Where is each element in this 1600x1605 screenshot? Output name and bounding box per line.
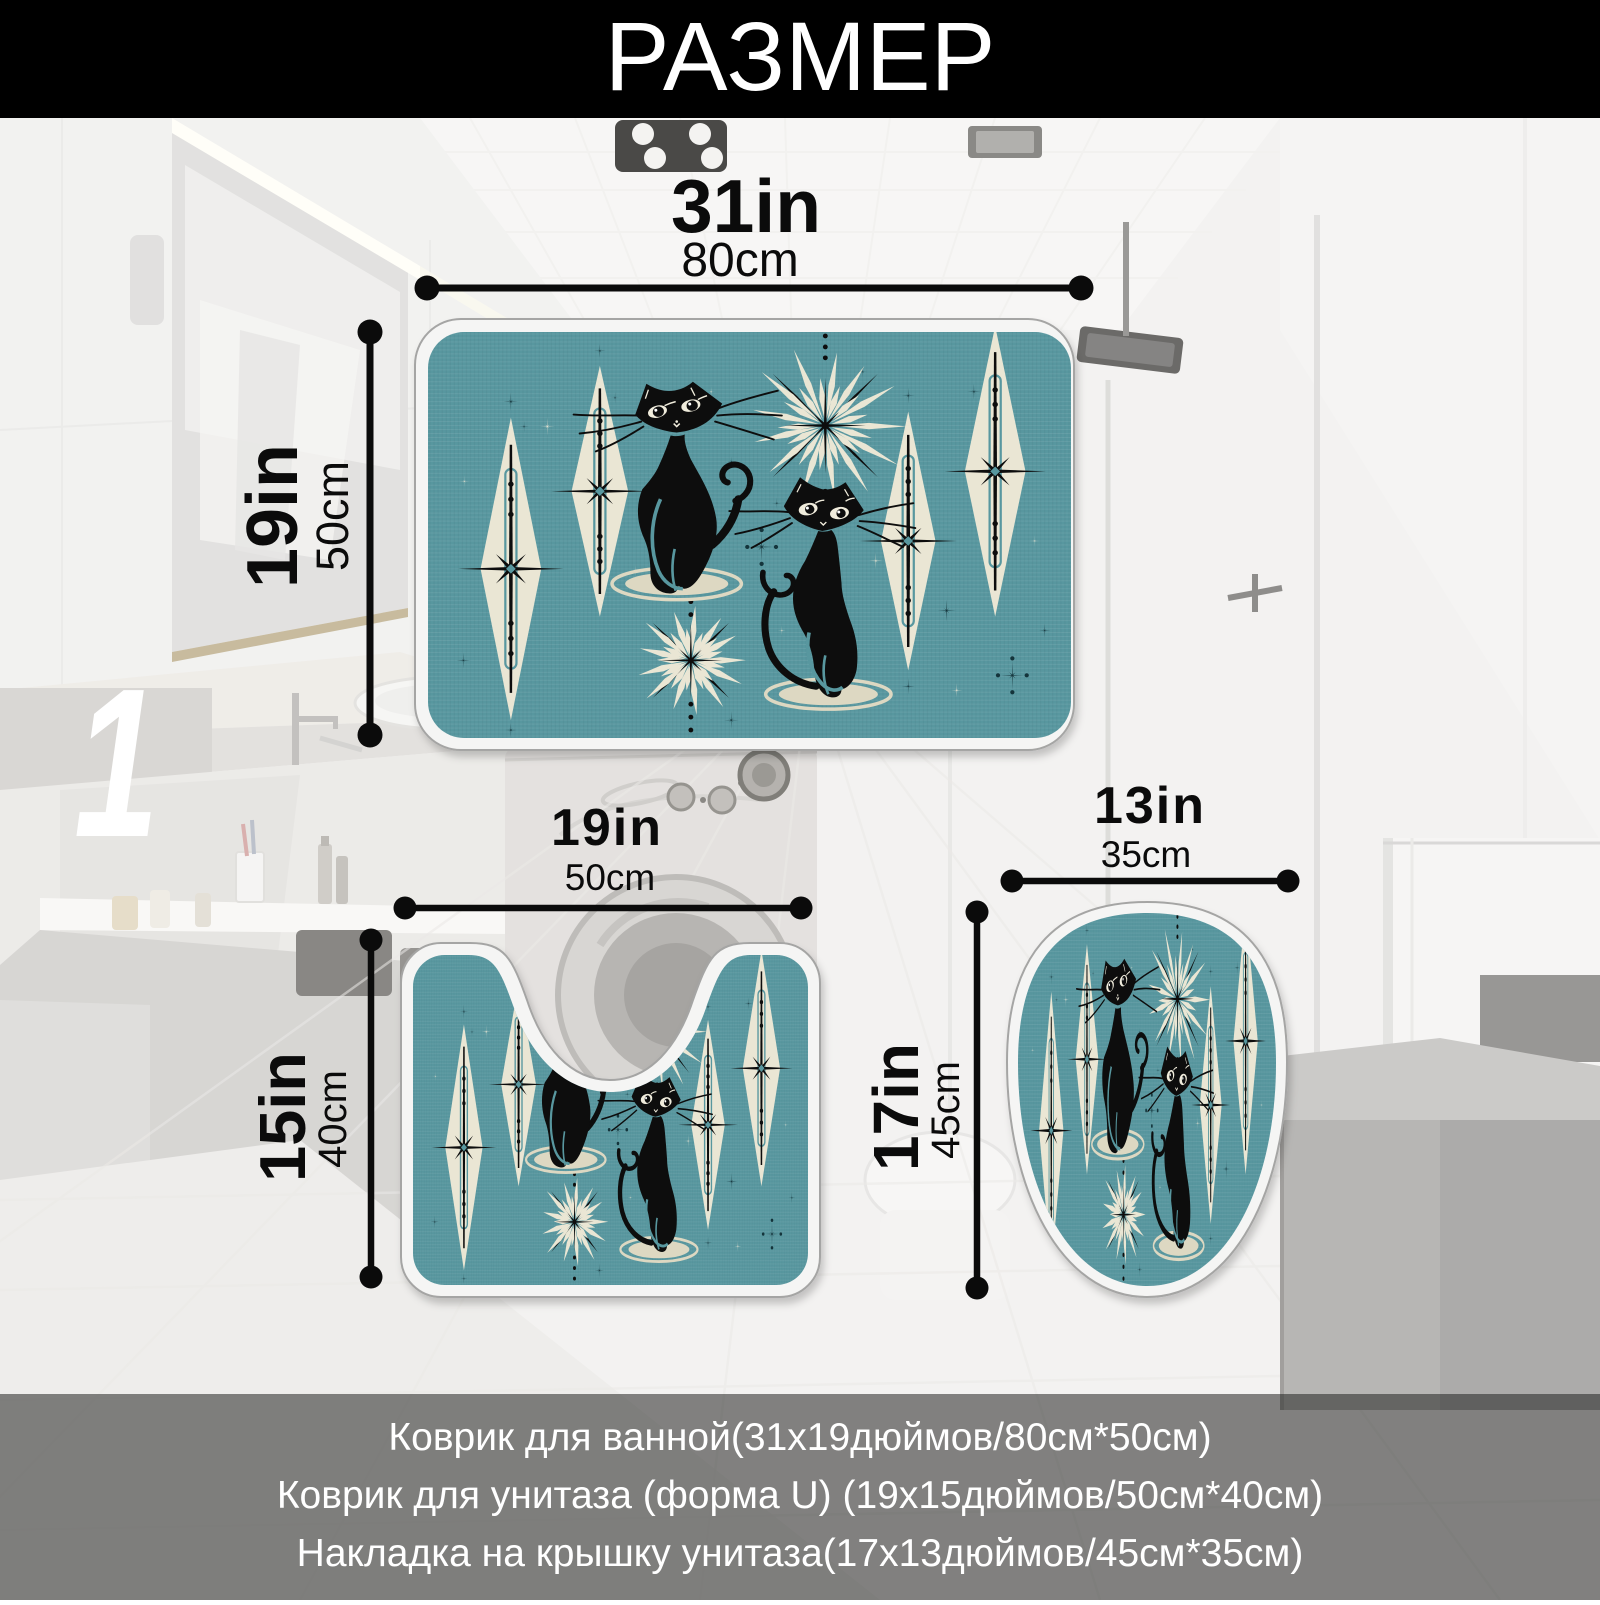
svg-text:50cm: 50cm xyxy=(565,857,655,898)
svg-text:80cm: 80cm xyxy=(681,234,798,287)
svg-text:50cm: 50cm xyxy=(307,461,358,571)
svg-text:Коврик для унитаза (форма U): Коврик для унитаза (форма U) (19x15дюймо… xyxy=(277,1474,1323,1517)
svg-text:19in: 19in xyxy=(233,444,313,588)
svg-text:19in: 19in xyxy=(551,799,663,857)
svg-text:Накладка на крышку унитаза(17x: Накладка на крышку унитаза(17x13дюймов/4… xyxy=(297,1532,1304,1575)
svg-text:13in: 13in xyxy=(1094,777,1206,835)
svg-text:1: 1 xyxy=(74,645,159,881)
svg-text:40cm: 40cm xyxy=(311,1070,355,1168)
svg-text:15in: 15in xyxy=(246,1052,319,1182)
svg-text:45cm: 45cm xyxy=(924,1061,968,1159)
svg-text:Коврик для ванной(31x19дюймов/: Коврик для ванной(31x19дюймов/80см*50см) xyxy=(388,1416,1211,1459)
svg-text:17in: 17in xyxy=(860,1043,932,1171)
svg-text:РАЗМЕР: РАЗМЕР xyxy=(605,2,996,111)
svg-text:35cm: 35cm xyxy=(1101,834,1191,875)
